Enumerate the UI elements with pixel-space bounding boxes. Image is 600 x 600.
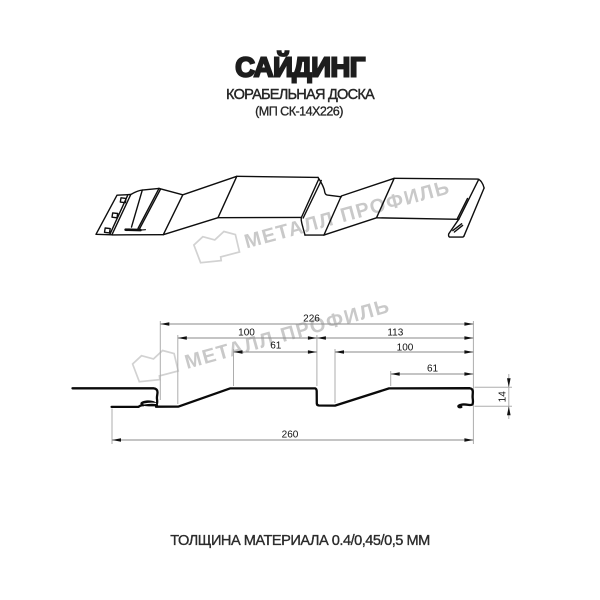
svg-text:МЕТАЛЛ ПРОФИЛЬ: МЕТАЛЛ ПРОФИЛЬ xyxy=(182,295,392,374)
svg-text:226: 226 xyxy=(303,314,320,325)
svg-text:КОРАБЕЛЬНАЯ ДОСКА: КОРАБЕЛЬНАЯ ДОСКА xyxy=(226,87,375,103)
svg-text:113: 113 xyxy=(387,328,403,339)
svg-text:ТОЛЩИНА МАТЕРИАЛА 0.4/0,45/0,5: ТОЛЩИНА МАТЕРИАЛА 0.4/0,45/0,5 ММ xyxy=(170,533,430,549)
svg-text:61: 61 xyxy=(427,364,439,375)
svg-text:61: 61 xyxy=(270,341,282,352)
svg-text:САЙДИНГ: САЙДИНГ xyxy=(235,50,365,82)
svg-text:260: 260 xyxy=(282,430,299,441)
svg-text:(МП СК-14Х226): (МП СК-14Х226) xyxy=(255,105,343,119)
svg-text:100: 100 xyxy=(238,328,255,339)
svg-text:14: 14 xyxy=(498,391,509,403)
svg-text:100: 100 xyxy=(397,343,414,354)
svg-text:МЕТАЛЛ ПРОФИЛЬ: МЕТАЛЛ ПРОФИЛЬ xyxy=(242,176,453,253)
